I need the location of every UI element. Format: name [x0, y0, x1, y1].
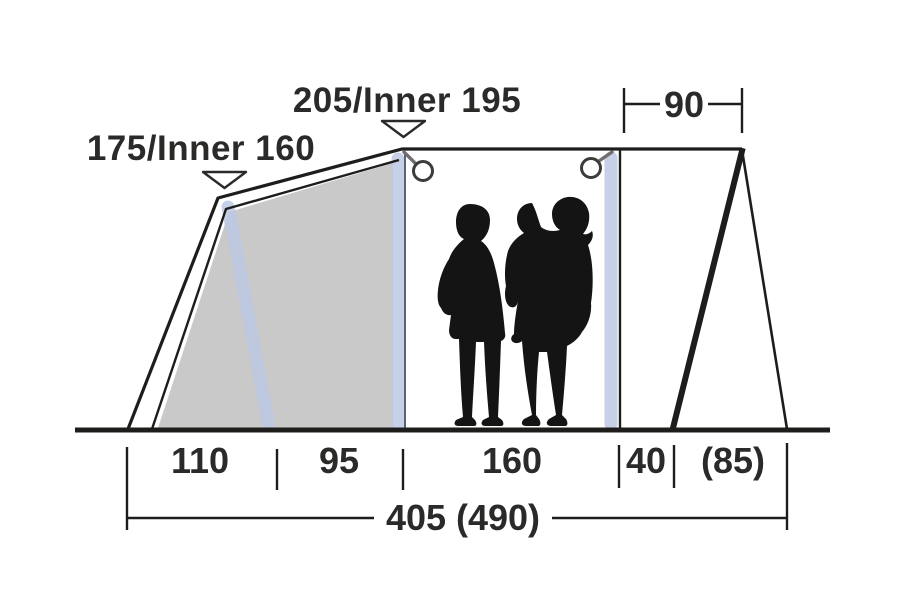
total-length-dimension: 405 (490)	[127, 497, 787, 538]
floor-segment-value: 95	[319, 440, 359, 481]
floor-segment-value: 40	[626, 440, 666, 481]
floor-segment-value: (85)	[701, 440, 765, 481]
floor-segment-value: 160	[482, 440, 542, 481]
top-width-dimension: 90	[624, 84, 742, 133]
down-arrow-icon-front	[203, 172, 246, 188]
tent-dimension-diagram: 175/Inner 160 205/Inner 195 90 110 95 16…	[0, 0, 914, 600]
floor-segment-value: 110	[171, 440, 229, 481]
people-silhouettes	[438, 197, 593, 426]
height-label-front: 175/Inner 160	[87, 129, 315, 188]
main-height-label: 205/Inner 195	[293, 81, 521, 120]
rear-upright-pole	[673, 151, 742, 428]
rear-guy-line	[742, 150, 787, 429]
ring-icon-left	[414, 162, 433, 181]
diagram-canvas: 175/Inner 160 205/Inner 195 90 110 95 16…	[0, 0, 914, 600]
person-silhouette-adult	[438, 204, 506, 426]
ring-icon-right	[582, 159, 601, 178]
front-height-label: 175/Inner 160	[87, 129, 315, 168]
height-label-main: 205/Inner 195	[293, 81, 521, 137]
down-arrow-icon-main	[382, 121, 425, 137]
hanging-rings	[404, 152, 612, 181]
total-length-value: 405 (490)	[386, 497, 540, 538]
inner-tent-fill	[158, 163, 393, 428]
person-silhouette-adult-with-child	[505, 197, 593, 426]
top-width-value: 90	[664, 84, 704, 125]
